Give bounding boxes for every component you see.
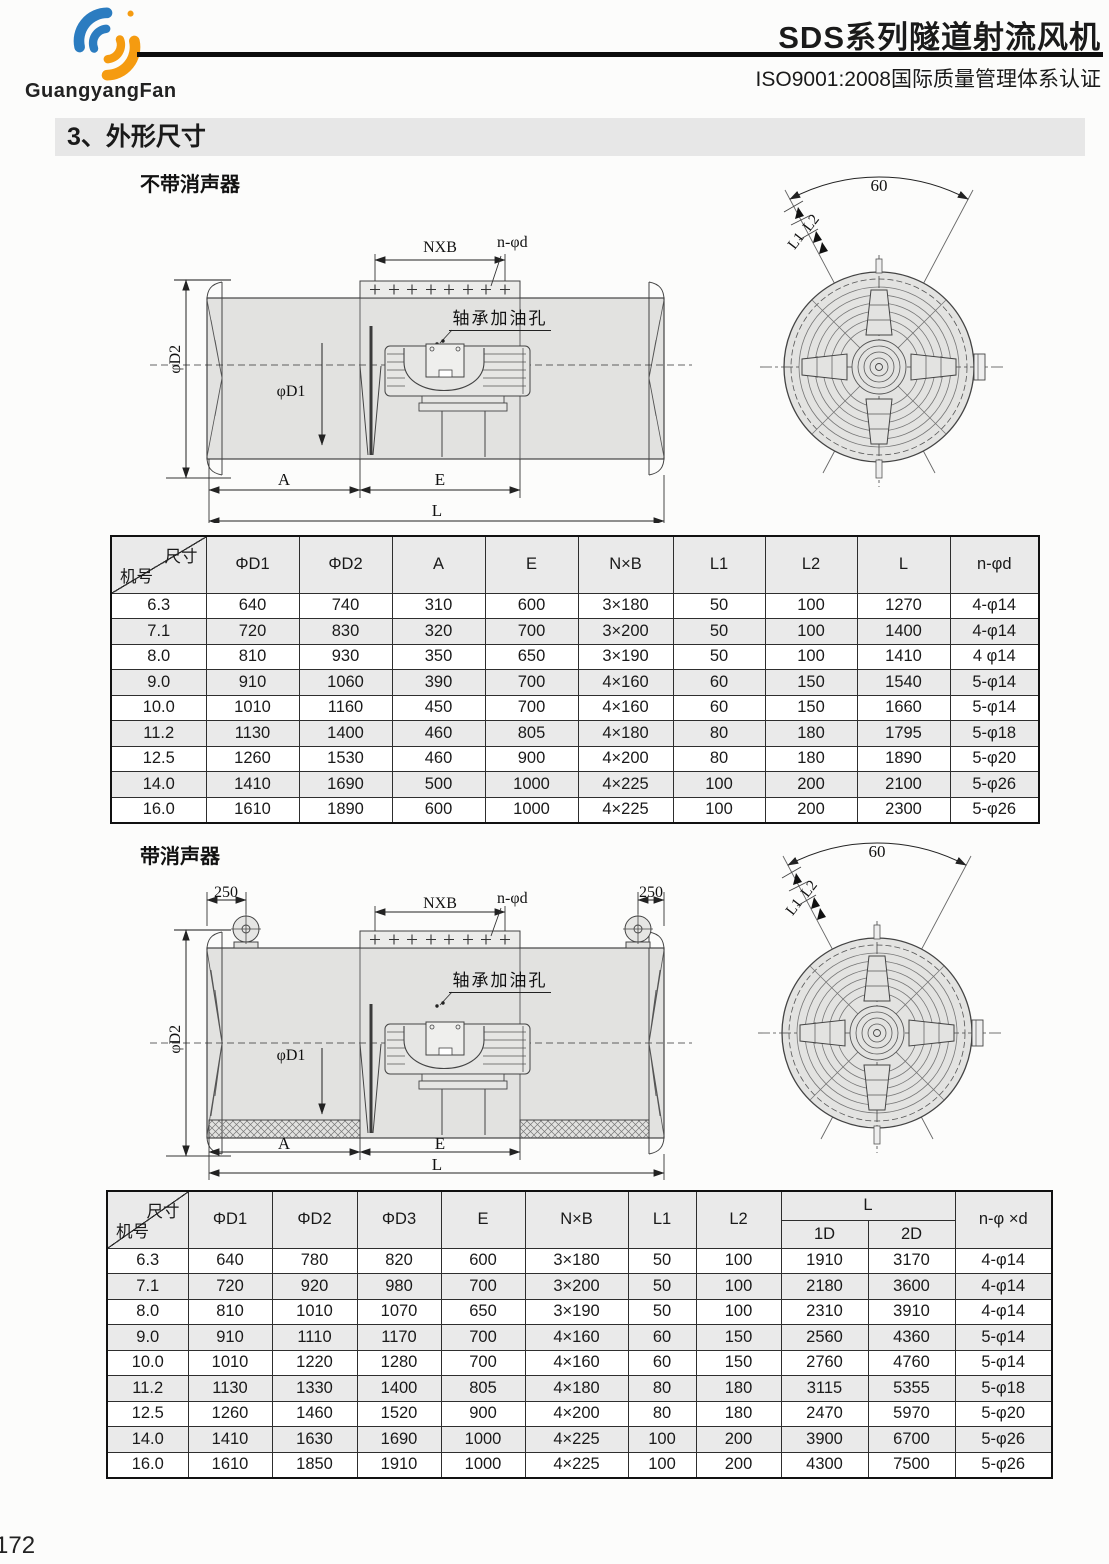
table-cell: 8.0 xyxy=(107,1299,188,1325)
corner-header-cell: 尺寸 机号 xyxy=(107,1191,188,1248)
table-cell: 780 xyxy=(272,1248,357,1274)
table-row: 10.01010122012807004×16060150276047605-φ… xyxy=(107,1350,1052,1376)
table-cell: 100 xyxy=(628,1452,696,1478)
dim-label-l: L xyxy=(417,1155,457,1175)
table-cell: 1280 xyxy=(357,1350,441,1376)
table-cell: 1000 xyxy=(485,772,578,798)
column-header: ΦD1 xyxy=(188,1191,272,1248)
table-row: 16.016101850191010004×225100200430075005… xyxy=(107,1452,1052,1478)
table-cell: 640 xyxy=(188,1248,272,1274)
column-header: E xyxy=(485,536,578,593)
table-cell: 1460 xyxy=(272,1401,357,1427)
table-cell: 80 xyxy=(673,721,765,747)
table-cell: 1010 xyxy=(188,1350,272,1376)
table-cell: 150 xyxy=(765,695,857,721)
table-cell: 7500 xyxy=(868,1452,955,1478)
table-row: 6.36407808206003×18050100191031704-φ14 xyxy=(107,1248,1052,1274)
table-cell: 650 xyxy=(441,1299,525,1325)
table-cell: 830 xyxy=(299,619,392,645)
table-cell: 5-φ26 xyxy=(955,1452,1052,1478)
table-cell: 6700 xyxy=(868,1427,955,1453)
corner-label-model: 机号 xyxy=(120,563,153,587)
table-cell: 4-φ14 xyxy=(955,1274,1052,1300)
table-header-row: 尺寸 机号 ΦD1 ΦD2 A E N×B L1 L2 L n-φd xyxy=(111,536,1039,593)
column-header: ΦD2 xyxy=(272,1191,357,1248)
table-row: 6.36407403106003×1805010012704-φ14 xyxy=(111,593,1039,619)
table-cell: 1540 xyxy=(857,670,950,696)
table-cell: 100 xyxy=(673,772,765,798)
table-cell: 1220 xyxy=(272,1350,357,1376)
table-cell: 5-φ14 xyxy=(950,695,1039,721)
table-cell: 3910 xyxy=(868,1299,955,1325)
table-cell: 100 xyxy=(628,1427,696,1453)
table-cell: 1130 xyxy=(188,1376,272,1402)
table-cell: 1910 xyxy=(357,1452,441,1478)
column-header: ΦD2 xyxy=(299,536,392,593)
table-cell: 4×200 xyxy=(525,1401,628,1427)
table-cell: 5-φ20 xyxy=(955,1401,1052,1427)
column-header: N×B xyxy=(578,536,673,593)
table-cell: 650 xyxy=(485,644,578,670)
column-header: ΦD1 xyxy=(206,536,299,593)
table-cell: 600 xyxy=(441,1248,525,1274)
table-cell: 2100 xyxy=(857,772,950,798)
table-cell: 1410 xyxy=(206,772,299,798)
table-cell: 150 xyxy=(696,1325,781,1351)
catalog-page: GuangyangFan SDS系列隧道射流风机 ISO9001:2008国际质… xyxy=(0,0,1109,1564)
table-cell: 50 xyxy=(673,619,765,645)
table-cell: 4×180 xyxy=(525,1376,628,1402)
table-cell: 100 xyxy=(696,1299,781,1325)
table-cell: 9.0 xyxy=(111,670,206,696)
table-row: 10.0101011604507004×1606015016605-φ14 xyxy=(111,695,1039,721)
table-cell: 1260 xyxy=(188,1401,272,1427)
table-cell: 7.1 xyxy=(107,1274,188,1300)
table-cell: 5-φ26 xyxy=(950,772,1039,798)
table-cell: 14.0 xyxy=(111,772,206,798)
table-cell: 5-φ14 xyxy=(950,670,1039,696)
table-cell: 910 xyxy=(188,1325,272,1351)
table-cell: 50 xyxy=(628,1274,696,1300)
table-cell: 2180 xyxy=(781,1274,868,1300)
table-cell: 7.1 xyxy=(111,619,206,645)
table-cell: 100 xyxy=(765,619,857,645)
dim-label-phi-d1: φD1 xyxy=(260,1047,322,1065)
table-cell: 4-φ14 xyxy=(950,619,1039,645)
table-cell: 1270 xyxy=(857,593,950,619)
table-cell: 390 xyxy=(392,670,485,696)
table-cell: 4 φ14 xyxy=(950,644,1039,670)
header-rule xyxy=(137,52,1103,57)
table-cell: 2760 xyxy=(781,1350,868,1376)
table-cell: 600 xyxy=(392,797,485,823)
dim-label-a: A xyxy=(264,470,304,490)
table-cell: 1130 xyxy=(206,721,299,747)
table-cell: 3×190 xyxy=(578,644,673,670)
table-cell: 5-φ20 xyxy=(950,746,1039,772)
table-cell: 11.2 xyxy=(107,1376,188,1402)
table-row: 14.01410169050010004×22510020021005-φ26 xyxy=(111,772,1039,798)
table-cell: 700 xyxy=(441,1274,525,1300)
logo-swirl-icon xyxy=(57,6,157,82)
table-cell: 60 xyxy=(673,695,765,721)
table-cell: 10.0 xyxy=(111,695,206,721)
column-header: N×B xyxy=(525,1191,628,1248)
table-cell: 60 xyxy=(673,670,765,696)
table-cell: 5-φ18 xyxy=(955,1376,1052,1402)
page-title: SDS系列隧道射流风机 xyxy=(778,12,1101,57)
table-cell: 720 xyxy=(188,1274,272,1300)
table-cell: 1610 xyxy=(206,797,299,823)
table-cell: 820 xyxy=(357,1248,441,1274)
table-cell: 1400 xyxy=(299,721,392,747)
table-cell: 80 xyxy=(628,1376,696,1402)
table-cell: 1160 xyxy=(299,695,392,721)
table-cell: 3×200 xyxy=(578,619,673,645)
table-cell: 1690 xyxy=(357,1427,441,1453)
table-cell: 4×160 xyxy=(525,1350,628,1376)
table-cell: 200 xyxy=(696,1452,781,1478)
table-cell: 810 xyxy=(206,644,299,670)
column-header: ΦD3 xyxy=(357,1191,441,1248)
table-cell: 80 xyxy=(673,746,765,772)
dim-label-250-right: 250 xyxy=(625,884,677,902)
table-cell: 2300 xyxy=(857,797,950,823)
bearing-oil-hole-note: 轴承加油孔 xyxy=(449,971,551,993)
table-cell: 920 xyxy=(272,1274,357,1300)
table-cell: 4760 xyxy=(868,1350,955,1376)
table-cell: 1400 xyxy=(857,619,950,645)
dim-label-250-left: 250 xyxy=(200,884,252,902)
dim-label-n-phi-d: n-φd xyxy=(497,234,528,252)
table-cell: 12.5 xyxy=(107,1401,188,1427)
table-cell: 50 xyxy=(673,593,765,619)
dim-label-e: E xyxy=(420,470,460,490)
table-cell: 5-φ14 xyxy=(955,1350,1052,1376)
table-cell: 100 xyxy=(765,593,857,619)
table-cell: 16.0 xyxy=(107,1452,188,1478)
table-cell: 6.3 xyxy=(111,593,206,619)
table-cell: 3900 xyxy=(781,1427,868,1453)
table-header-row: 尺寸 机号 ΦD1 ΦD2 ΦD3 E N×B L1 L2 L n-φ ×d xyxy=(107,1191,1052,1220)
table-cell: 1060 xyxy=(299,670,392,696)
table-cell: 100 xyxy=(696,1274,781,1300)
table-row: 12.5126015304609004×2008018018905-φ20 xyxy=(111,746,1039,772)
table-cell: 1010 xyxy=(272,1299,357,1325)
table-cell: 4×225 xyxy=(525,1427,628,1453)
table-cell: 4×160 xyxy=(525,1325,628,1351)
table-cell: 1610 xyxy=(188,1452,272,1478)
table-cell: 180 xyxy=(696,1401,781,1427)
section-title-text: 3、外形尺寸 xyxy=(67,123,206,151)
table-cell: 1690 xyxy=(299,772,392,798)
dim-label-angle-60: 60 xyxy=(855,176,903,196)
dim-label-l: L xyxy=(417,501,457,521)
table-cell: 1630 xyxy=(272,1427,357,1453)
table-cell: 12.5 xyxy=(111,746,206,772)
table-cell: 4×160 xyxy=(578,670,673,696)
table-row: 7.17209209807003×20050100218036004-φ14 xyxy=(107,1274,1052,1300)
table-cell: 8.0 xyxy=(111,644,206,670)
table-cell: 3115 xyxy=(781,1376,868,1402)
table-cell: 5-φ14 xyxy=(955,1325,1052,1351)
table-cell: 1890 xyxy=(299,797,392,823)
table-cell: 640 xyxy=(206,593,299,619)
column-header: L2 xyxy=(696,1191,781,1248)
table-cell: 2560 xyxy=(781,1325,868,1351)
table-cell: 4300 xyxy=(781,1452,868,1478)
table-cell: 100 xyxy=(765,644,857,670)
table-cell: 700 xyxy=(485,695,578,721)
table-cell: 1000 xyxy=(485,797,578,823)
table-no-silencer: 尺寸 机号 ΦD1 ΦD2 A E N×B L1 L2 L n-φd 6.364… xyxy=(110,535,1040,824)
table-cell: 14.0 xyxy=(107,1427,188,1453)
table-cell: 50 xyxy=(673,644,765,670)
table-cell: 10.0 xyxy=(107,1350,188,1376)
table-cell: 900 xyxy=(441,1401,525,1427)
dim-label-angle-60: 60 xyxy=(853,842,901,862)
table-cell: 50 xyxy=(628,1299,696,1325)
table-cell: 100 xyxy=(696,1248,781,1274)
table-cell: 805 xyxy=(485,721,578,747)
table-row: 7.17208303207003×2005010014004-φ14 xyxy=(111,619,1039,645)
table-cell: 1010 xyxy=(206,695,299,721)
table-cell: 700 xyxy=(485,670,578,696)
column-header-2d: 2D xyxy=(868,1220,955,1248)
table-cell: 16.0 xyxy=(111,797,206,823)
table-cell: 320 xyxy=(392,619,485,645)
table-cell: 930 xyxy=(299,644,392,670)
table-cell: 1850 xyxy=(272,1452,357,1478)
table-cell: 740 xyxy=(299,593,392,619)
table-cell: 1910 xyxy=(781,1248,868,1274)
table-row: 16.01610189060010004×22510020023005-φ26 xyxy=(111,797,1039,823)
column-header: L1 xyxy=(673,536,765,593)
table-cell: 1330 xyxy=(272,1376,357,1402)
table-with-silencer: 尺寸 机号 ΦD1 ΦD2 ΦD3 E N×B L1 L2 L n-φ ×d 1… xyxy=(106,1190,1053,1479)
table-cell: 4-φ14 xyxy=(950,593,1039,619)
column-header-1d: 1D xyxy=(781,1220,868,1248)
table-cell: 4-φ14 xyxy=(955,1248,1052,1274)
dim-label-n-phi-d: n-φd xyxy=(497,890,528,908)
diagram-label-no-silencer: 不带消声器 xyxy=(140,168,240,197)
table-cell: 450 xyxy=(392,695,485,721)
table-cell: 1070 xyxy=(357,1299,441,1325)
table-cell: 3170 xyxy=(868,1248,955,1274)
table-cell: 200 xyxy=(765,772,857,798)
corner-label-size: 尺寸 xyxy=(147,1198,180,1222)
table-cell: 1000 xyxy=(441,1452,525,1478)
certification-text: ISO9001:2008国际质量管理体系认证 xyxy=(756,63,1101,93)
table-cell: 1890 xyxy=(857,746,950,772)
table-cell: 5355 xyxy=(868,1376,955,1402)
table-cell: 910 xyxy=(206,670,299,696)
column-header: L xyxy=(857,536,950,593)
table-cell: 2310 xyxy=(781,1299,868,1325)
table-cell: 60 xyxy=(628,1325,696,1351)
table-cell: 4×225 xyxy=(578,797,673,823)
column-header: A xyxy=(392,536,485,593)
table-cell: 180 xyxy=(765,746,857,772)
table-cell: 600 xyxy=(485,593,578,619)
page-number: 172 xyxy=(0,1532,35,1560)
table-cell: 3×180 xyxy=(525,1248,628,1274)
table-cell: 805 xyxy=(441,1376,525,1402)
table-cell: 980 xyxy=(357,1274,441,1300)
table-cell: 3×180 xyxy=(578,593,673,619)
table-cell: 3×190 xyxy=(525,1299,628,1325)
table-row: 11.21130133014008054×18080180311553555-φ… xyxy=(107,1376,1052,1402)
table-cell: 1400 xyxy=(357,1376,441,1402)
corner-label-model: 机号 xyxy=(116,1218,149,1242)
column-header: L1 xyxy=(628,1191,696,1248)
table-row: 14.014101630169010004×225100200390067005… xyxy=(107,1427,1052,1453)
table-row: 9.091010603907004×1606015015405-φ14 xyxy=(111,670,1039,696)
table-cell: 350 xyxy=(392,644,485,670)
table-cell: 700 xyxy=(485,619,578,645)
table-cell: 4-φ14 xyxy=(955,1299,1052,1325)
table-cell: 1410 xyxy=(857,644,950,670)
front-view-with-silencer xyxy=(733,821,1093,1166)
column-header-l-group: L xyxy=(781,1191,955,1220)
table-cell: 9.0 xyxy=(107,1325,188,1351)
table-cell: 150 xyxy=(696,1350,781,1376)
corner-header-cell: 尺寸 机号 xyxy=(111,536,206,593)
table-cell: 4×200 xyxy=(578,746,673,772)
dim-label-a: A xyxy=(264,1134,304,1154)
column-header: E xyxy=(441,1191,525,1248)
section-heading: 3、外形尺寸 xyxy=(55,118,1085,156)
table-cell: 1660 xyxy=(857,695,950,721)
table-cell: 50 xyxy=(628,1248,696,1274)
table-cell: 5-φ26 xyxy=(955,1427,1052,1453)
table-cell: 4×180 xyxy=(578,721,673,747)
dim-label-nxb: NXB xyxy=(405,239,475,257)
table-cell: 5-φ18 xyxy=(950,721,1039,747)
table-cell: 4×225 xyxy=(525,1452,628,1478)
dim-label-phi-d2: φD2 xyxy=(167,1009,185,1069)
table-row: 11.2113014004608054×1808018017955-φ18 xyxy=(111,721,1039,747)
table-cell: 500 xyxy=(392,772,485,798)
table-cell: 1000 xyxy=(441,1427,525,1453)
table-cell: 200 xyxy=(765,797,857,823)
table-cell: 180 xyxy=(765,721,857,747)
dim-label-nxb: NXB xyxy=(405,895,475,913)
table-cell: 4×160 xyxy=(578,695,673,721)
table-cell: 5970 xyxy=(868,1401,955,1427)
table-cell: 1530 xyxy=(299,746,392,772)
bearing-oil-hole-note: 轴承加油孔 xyxy=(449,309,551,331)
table-cell: 810 xyxy=(188,1299,272,1325)
front-view-no-silencer xyxy=(735,155,1095,500)
column-header: n-φ ×d xyxy=(955,1191,1052,1248)
dim-label-phi-d1: φD1 xyxy=(260,383,322,401)
table-cell: 700 xyxy=(441,1325,525,1351)
table-cell: 3×200 xyxy=(525,1274,628,1300)
column-header: n-φd xyxy=(950,536,1039,593)
table-cell: 100 xyxy=(673,797,765,823)
table-cell: 900 xyxy=(485,746,578,772)
logo-text: GuangyangFan xyxy=(25,80,215,103)
table-cell: 4360 xyxy=(868,1325,955,1351)
corner-label-size: 尺寸 xyxy=(165,543,198,567)
table-cell: 2470 xyxy=(781,1401,868,1427)
table-cell: 60 xyxy=(628,1350,696,1376)
table-cell: 1410 xyxy=(188,1427,272,1453)
table-cell: 720 xyxy=(206,619,299,645)
table-cell: 1260 xyxy=(206,746,299,772)
table-cell: 200 xyxy=(696,1427,781,1453)
table-cell: 1170 xyxy=(357,1325,441,1351)
table-cell: 310 xyxy=(392,593,485,619)
table-cell: 150 xyxy=(765,670,857,696)
table-cell: 5-φ26 xyxy=(950,797,1039,823)
column-header: L2 xyxy=(765,536,857,593)
table-row: 12.51260146015209004×20080180247059705-φ… xyxy=(107,1401,1052,1427)
table-cell: 1110 xyxy=(272,1325,357,1351)
table-row: 9.0910111011707004×16060150256043605-φ14 xyxy=(107,1325,1052,1351)
dim-label-e: E xyxy=(420,1134,460,1154)
table-cell: 180 xyxy=(696,1376,781,1402)
table-cell: 1520 xyxy=(357,1401,441,1427)
table-cell: 1795 xyxy=(857,721,950,747)
table-cell: 11.2 xyxy=(111,721,206,747)
table-cell: 4×225 xyxy=(578,772,673,798)
table-row: 8.08109303506503×1905010014104 φ14 xyxy=(111,644,1039,670)
table-cell: 460 xyxy=(392,746,485,772)
table-cell: 6.3 xyxy=(107,1248,188,1274)
table-cell: 460 xyxy=(392,721,485,747)
dim-label-phi-d2: φD2 xyxy=(167,329,185,389)
table-cell: 80 xyxy=(628,1401,696,1427)
table-row: 8.0810101010706503×19050100231039104-φ14 xyxy=(107,1299,1052,1325)
table-cell: 3600 xyxy=(868,1274,955,1300)
table-cell: 700 xyxy=(441,1350,525,1376)
